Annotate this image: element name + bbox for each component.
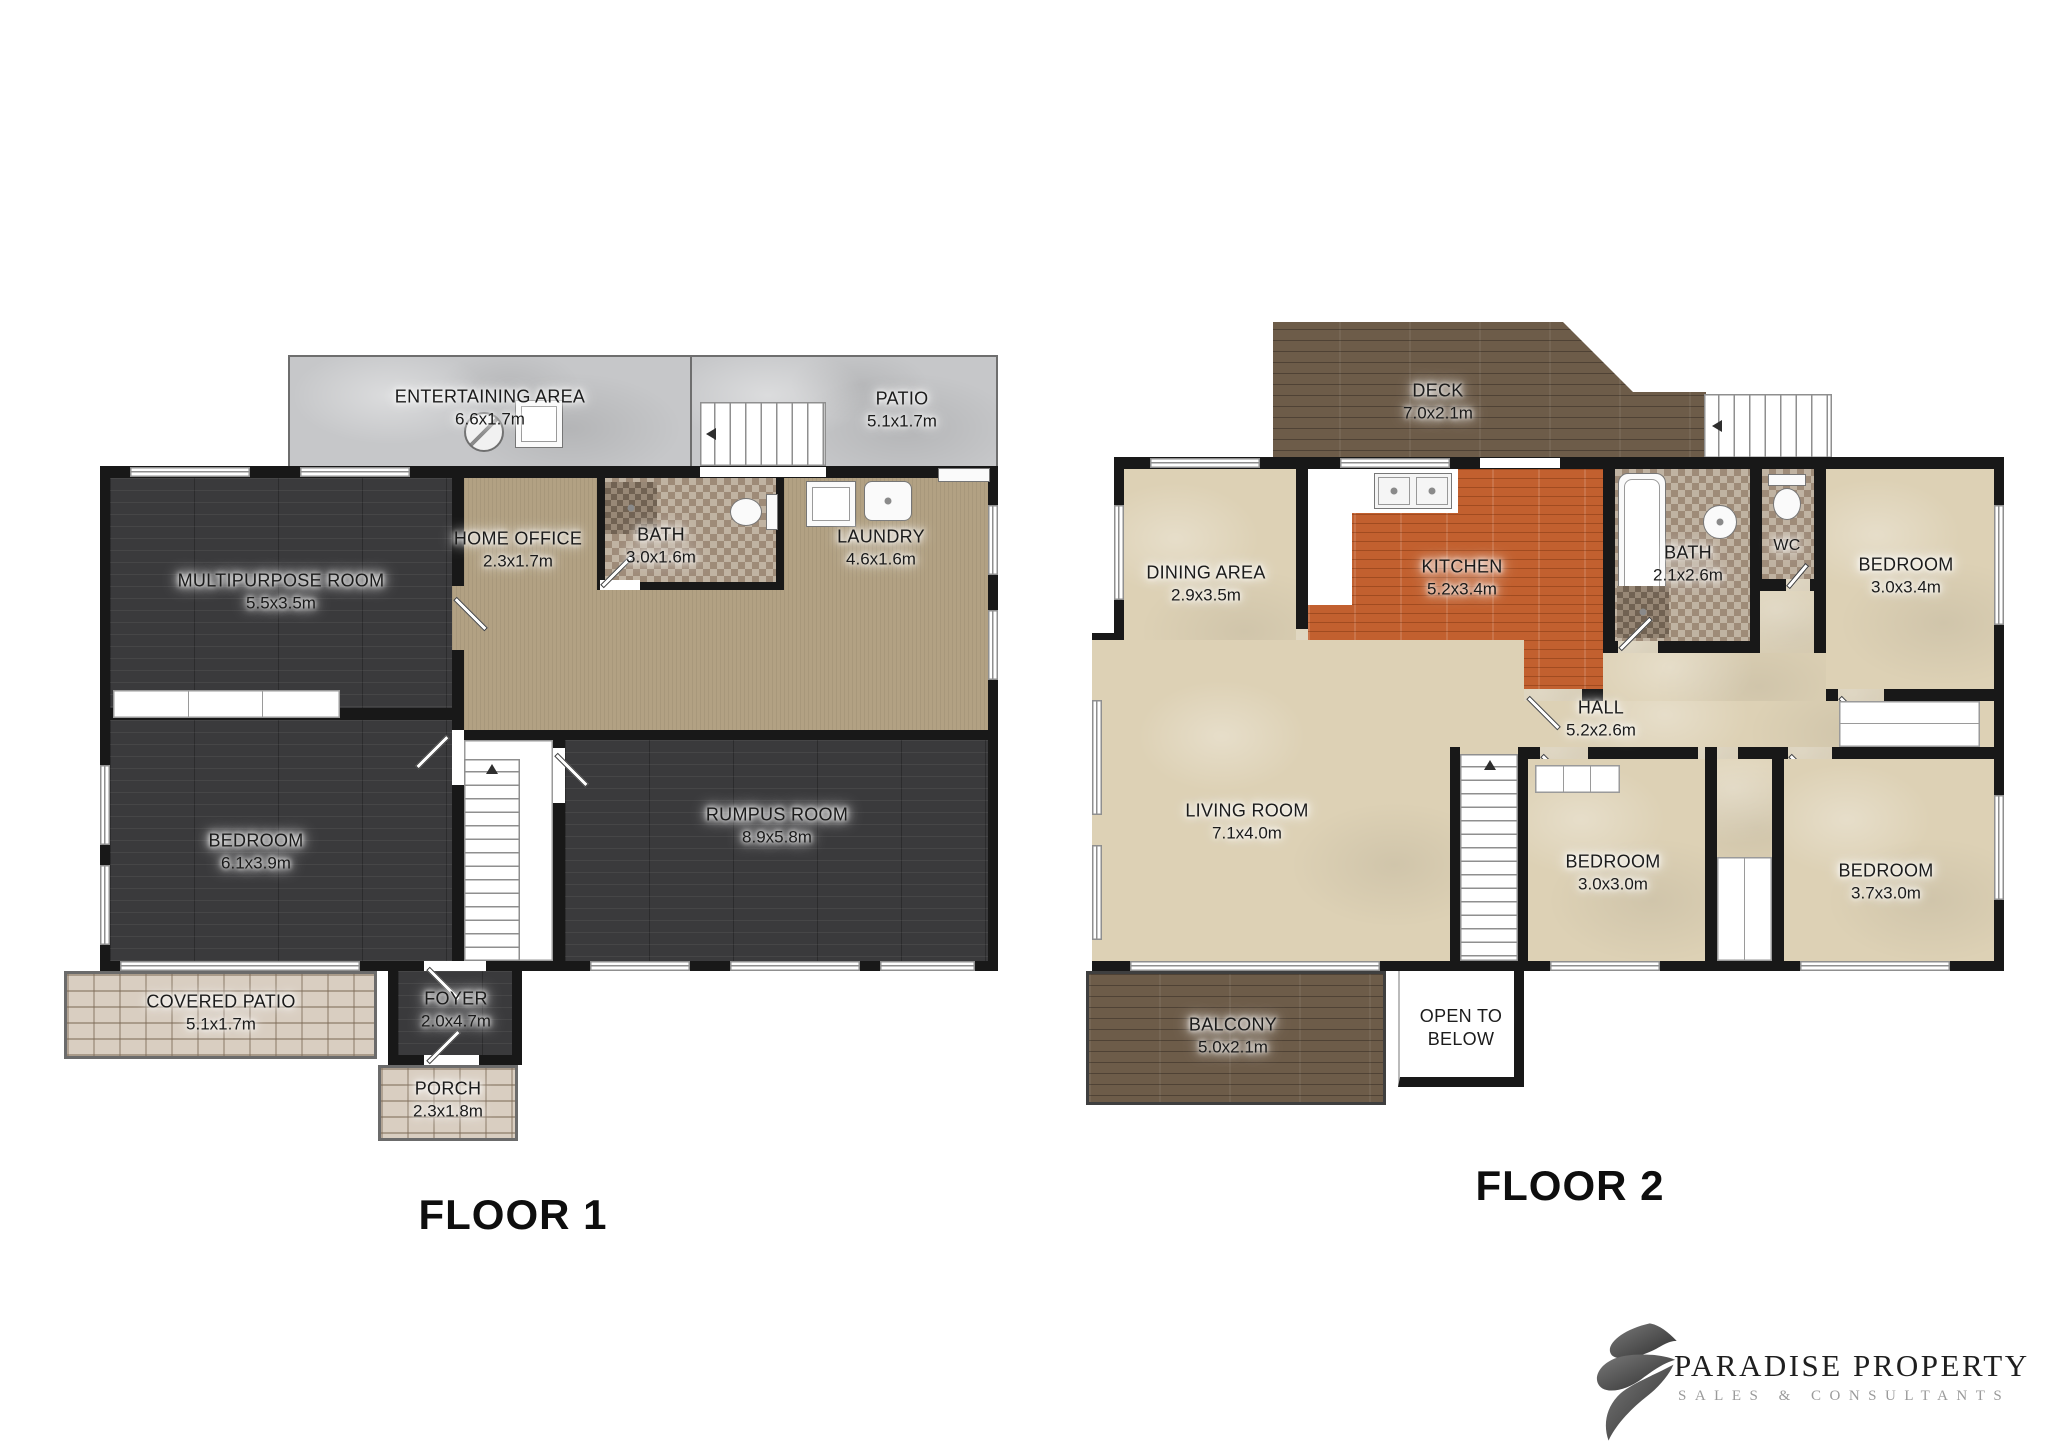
floorplan-canvas: ENTERTAINING AREA6.6x1.7m PATIO5.1x1.7m … — [0, 0, 2048, 1448]
wall-segment — [1705, 747, 1717, 961]
stairs-direction-arrow — [706, 428, 716, 440]
kitchen-sink-icon — [1374, 473, 1452, 509]
room-label-covered-patio: COVERED PATIO5.1x1.7m — [146, 991, 295, 1036]
bedroom-closet — [1717, 857, 1772, 961]
room-dims: 5.1x1.7m — [186, 1014, 256, 1036]
sink-bowl — [1378, 477, 1410, 505]
room-name: BATH — [637, 524, 685, 547]
sliding-door-opening — [1480, 458, 1560, 468]
sink-bowl — [1416, 477, 1448, 505]
room-label-multipurpose: MULTIPURPOSE ROOM5.5x3.5m — [178, 570, 385, 615]
room-dims: 3.0x3.0m — [1578, 874, 1648, 896]
room-label-foyer: FOYER2.0x4.7m — [421, 988, 491, 1033]
window — [1340, 458, 1450, 468]
room-name: KITCHEN — [1421, 556, 1502, 579]
room-dims: 6.1x3.9m — [221, 853, 291, 875]
room-label-laundry: LAUNDRY4.6x1.6m — [837, 526, 925, 571]
stairs-direction-arrow — [486, 764, 498, 774]
room-label-entertaining: ENTERTAINING AREA6.6x1.7m — [395, 386, 585, 431]
room-label-open-to-below: OPEN TO BELOW — [1401, 1005, 1521, 1051]
window — [1994, 505, 2004, 625]
bedroom-corridor — [1717, 759, 1772, 857]
room-name: BEDROOM — [208, 830, 303, 853]
room-label-wc: WC — [1773, 536, 1800, 556]
sink-dot — [1391, 488, 1398, 495]
room-label-bedroom-right: BEDROOM3.7x3.0m — [1838, 860, 1933, 905]
room-label-deck: DECK7.0x2.1m — [1403, 380, 1473, 425]
toilet-icon — [1768, 474, 1806, 522]
window — [1114, 505, 1124, 600]
room-dims: 2.3x1.8m — [413, 1101, 483, 1123]
room-dims: 5.5x3.5m — [246, 593, 316, 615]
shower-icon — [1617, 586, 1669, 638]
window — [880, 961, 975, 971]
room-dims: 5.1x1.7m — [867, 411, 937, 433]
room-dims: 4.6x1.6m — [846, 549, 916, 571]
sink-dot — [885, 498, 892, 505]
wall-segment — [1603, 469, 1615, 653]
toilet-bowl — [730, 498, 762, 526]
logo-feather-svg — [1588, 1318, 1683, 1446]
door-opening — [700, 467, 826, 477]
room-dims: 7.0x2.1m — [1403, 403, 1473, 425]
room-label-hall: HALL5.2x2.6m — [1566, 697, 1636, 742]
window — [1994, 795, 2004, 900]
room-name: ENTERTAINING AREA — [395, 386, 585, 409]
window — [590, 961, 690, 971]
room-name: BEDROOM — [1838, 860, 1933, 883]
basin-dot — [1717, 519, 1724, 526]
room-label-rumpus: RUMPUS ROOM8.9x5.8m — [706, 804, 848, 849]
window — [988, 505, 998, 575]
room-label-dining: DINING AREA2.9x3.5m — [1146, 562, 1265, 607]
toilet-icon — [730, 494, 778, 530]
wall-segment — [1450, 747, 1460, 961]
room-dims: 2.9x3.5m — [1171, 585, 1241, 607]
window — [100, 765, 110, 845]
basin-icon — [1703, 505, 1737, 539]
wall-segment — [1772, 747, 1784, 961]
room-dims: 3.7x3.0m — [1851, 883, 1921, 905]
room-name: BEDROOM — [1858, 554, 1953, 577]
room-dims: 2.3x1.7m — [483, 551, 553, 573]
floor1-title: FLOOR 1 — [418, 1191, 607, 1239]
room-name: BATH — [1664, 542, 1712, 565]
bedroom-closet — [1535, 765, 1620, 793]
drain-dot — [628, 505, 635, 512]
room-name: BEDROOM — [1565, 851, 1660, 874]
room-name: FOYER — [424, 988, 488, 1011]
stairs-direction-arrow — [1712, 420, 1722, 432]
door-opening — [1698, 747, 1738, 759]
room-name: LAUNDRY — [837, 526, 925, 549]
stairs-floor1 — [464, 759, 520, 961]
room-dims: 7.1x4.0m — [1212, 823, 1282, 845]
room-label-balcony: BALCONY5.0x2.1m — [1189, 1014, 1277, 1059]
hall-corridor — [1603, 653, 1826, 701]
room-name: MULTIPURPOSE ROOM — [178, 570, 385, 593]
window — [1092, 700, 1102, 815]
deck-stairs — [1704, 394, 1832, 458]
wall-segment — [1750, 469, 1762, 579]
window — [988, 610, 998, 680]
room-name: WC — [1773, 536, 1800, 556]
room-label-bedroom-top: BEDROOM3.0x3.4m — [1858, 554, 1953, 599]
bedroom-closet — [113, 690, 340, 718]
room-name: HOME OFFICE — [454, 528, 582, 551]
wall-segment — [1524, 747, 1994, 759]
window — [1800, 961, 1950, 971]
room-dims: 5.0x2.1m — [1198, 1037, 1268, 1059]
room-dims: 2.1x2.6m — [1653, 565, 1723, 587]
stairs-floor2 — [1460, 754, 1518, 961]
window — [120, 961, 360, 971]
room-label-bedroom1: BEDROOM6.1x3.9m — [208, 830, 303, 875]
door-opening — [452, 730, 464, 785]
sink-dot — [1429, 488, 1436, 495]
laundry-sink-icon — [864, 481, 912, 521]
window — [1092, 845, 1102, 940]
room-name: LIVING ROOM — [1185, 800, 1308, 823]
logo-tagline-text: SALES & CONSULTANTS — [1678, 1388, 2010, 1405]
washer-icon — [806, 481, 856, 527]
room-name: DECK — [1412, 380, 1463, 403]
room-label-bath1: BATH3.0x1.6m — [626, 524, 696, 569]
room-name: HALL — [1578, 697, 1624, 720]
toilet-tank — [766, 494, 778, 530]
window — [300, 467, 410, 477]
stairs-direction-arrow — [1484, 760, 1496, 770]
room-label-living: LIVING ROOM7.1x4.0m — [1185, 800, 1308, 845]
window — [130, 467, 250, 477]
door-opening — [452, 586, 464, 650]
room-dims: 5.2x2.6m — [1566, 720, 1636, 742]
toilet-bowl — [1773, 488, 1801, 520]
room-dims: 2.0x4.7m — [421, 1011, 491, 1033]
window — [1150, 458, 1260, 468]
room-label-porch: PORCH2.3x1.8m — [413, 1078, 483, 1123]
room-name: COVERED PATIO — [146, 991, 295, 1014]
toilet-tank — [1768, 474, 1806, 486]
room-dims: 5.2x3.4m — [1427, 579, 1497, 601]
room-rumpus — [565, 740, 988, 961]
hall-corridor — [1760, 591, 1814, 653]
room-name: DINING AREA — [1146, 562, 1265, 585]
logo-icon — [1588, 1318, 1683, 1446]
room-label-patio: PATIO5.1x1.7m — [867, 388, 937, 433]
window — [1130, 961, 1380, 971]
room-label-kitchen: KITCHEN5.2x3.4m — [1421, 556, 1502, 601]
patio-stairs — [700, 402, 826, 466]
room-name: RUMPUS ROOM — [706, 804, 848, 827]
laundry-bench — [938, 468, 990, 482]
room-name: BALCONY — [1189, 1014, 1277, 1037]
room-dims: 3.0x1.6m — [626, 547, 696, 569]
room-deck — [1269, 318, 1710, 462]
wall-segment — [1518, 747, 1528, 961]
window — [100, 865, 110, 945]
room-dims: 8.9x5.8m — [742, 827, 812, 849]
logo-brand-text: PARADISE PROPERTY — [1674, 1348, 2030, 1384]
room-label-home-office: HOME OFFICE2.3x1.7m — [454, 528, 582, 573]
washer-inner — [812, 487, 850, 521]
kitchen-counter — [1308, 513, 1352, 605]
hall-closet — [1839, 701, 1980, 747]
room-dims: 3.0x3.4m — [1871, 577, 1941, 599]
room-name: PORCH — [415, 1078, 482, 1101]
room-label-bedroom-mid: BEDROOM3.0x3.0m — [1565, 851, 1660, 896]
room-name: PATIO — [876, 388, 929, 411]
floor2-title: FLOOR 2 — [1475, 1162, 1664, 1210]
room-name: OPEN TO BELOW — [1401, 1005, 1521, 1051]
drain-dot — [1640, 609, 1647, 616]
room-label-bath2: BATH2.1x2.6m — [1653, 542, 1723, 587]
window — [730, 961, 860, 971]
room-dims: 6.6x1.7m — [455, 409, 525, 431]
window — [1550, 961, 1660, 971]
